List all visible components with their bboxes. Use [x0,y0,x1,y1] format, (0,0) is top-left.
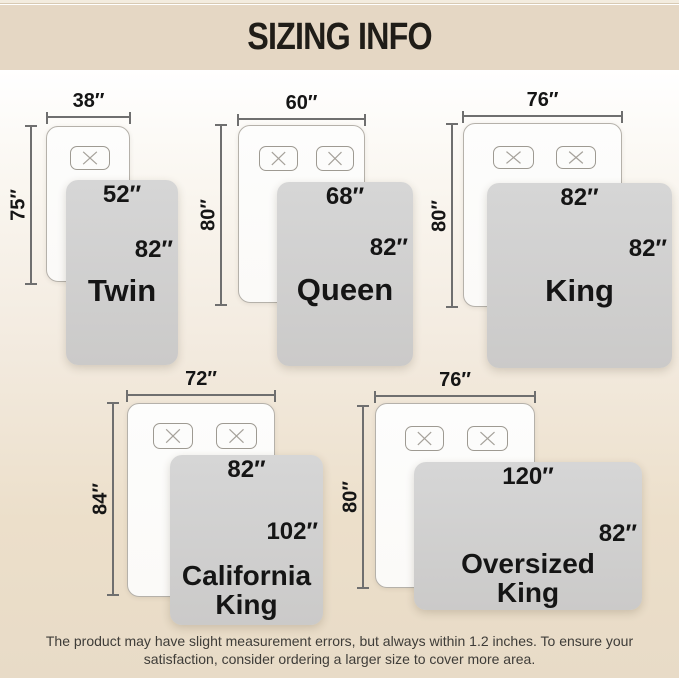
pillow [153,423,193,449]
pillow-cross-icon [71,147,109,169]
bed-width-label: 60″ [286,92,318,115]
blanket: 52″ 82″ Twin [66,180,178,365]
bed-length-label: 84″ [90,483,113,515]
bed-length-label: 80″ [429,200,452,232]
pillow-cross-icon [494,147,533,168]
pillow-cross-icon [557,147,595,168]
pillow-cross-icon [217,424,256,448]
diagram-area: 38″ 75″ 52″ 82″ Twin 60″ 80″ 68″ 82″ Que… [0,0,679,678]
bed-width-label: 76″ [439,369,471,392]
bed-width-label: 72″ [185,368,217,391]
bed-length-label: 80″ [198,199,221,231]
pillow [467,426,508,451]
pillow-cross-icon [154,424,192,448]
width-dimension-line [47,116,130,118]
pillow [405,426,444,451]
width-dimension-line [238,118,365,120]
bed-width-label: 38″ [73,90,105,113]
width-dimension-line [375,395,535,397]
blanket-length-label: 82″ [370,234,408,262]
pillow-cross-icon [260,147,297,170]
footnote: The product may have slight measurement … [0,632,679,669]
blanket-width-label: 52″ [103,181,141,209]
width-dimension-line [127,394,275,396]
blanket-width-label: 120″ [502,463,554,491]
sizing-info-page: SIZING INFO 38″ 75″ 52″ 82″ Twin 60″ 80″… [0,0,679,678]
blanket-width-label: 68″ [326,183,364,211]
blanket: 82″ 102″ California King [170,455,323,625]
blanket: 120″ 82″ Oversized King [414,462,642,610]
pillow-cross-icon [317,147,353,170]
pillow [259,146,298,171]
blanket-width-label: 82″ [227,456,265,484]
pillow-cross-icon [406,427,443,450]
size-name-label: California King [170,562,323,619]
size-name-label: Queen [277,274,413,306]
size-name-label: Twin [66,275,178,307]
footnote-text: The product may have slight measurement … [16,632,663,669]
blanket-width-label: 82″ [560,184,598,212]
blanket: 82″ 82″ King [487,183,672,368]
pillow [216,423,257,449]
width-dimension-line [463,115,622,117]
size-name-label: King [487,275,672,307]
bed-length-label: 80″ [340,481,363,513]
bed-width-label: 76″ [527,89,559,112]
pillow [70,146,110,170]
bed-length-label: 75″ [8,189,31,221]
pillow [493,146,534,169]
size-name-label: Oversized King [414,550,642,607]
blanket-length-label: 82″ [599,520,637,548]
pillow [556,146,596,169]
pillow [316,146,354,171]
blanket-length-label: 82″ [135,236,173,264]
blanket: 68″ 82″ Queen [277,182,413,366]
blanket-length-label: 102″ [266,518,318,546]
pillow-cross-icon [468,427,507,450]
blanket-length-label: 82″ [629,235,667,263]
